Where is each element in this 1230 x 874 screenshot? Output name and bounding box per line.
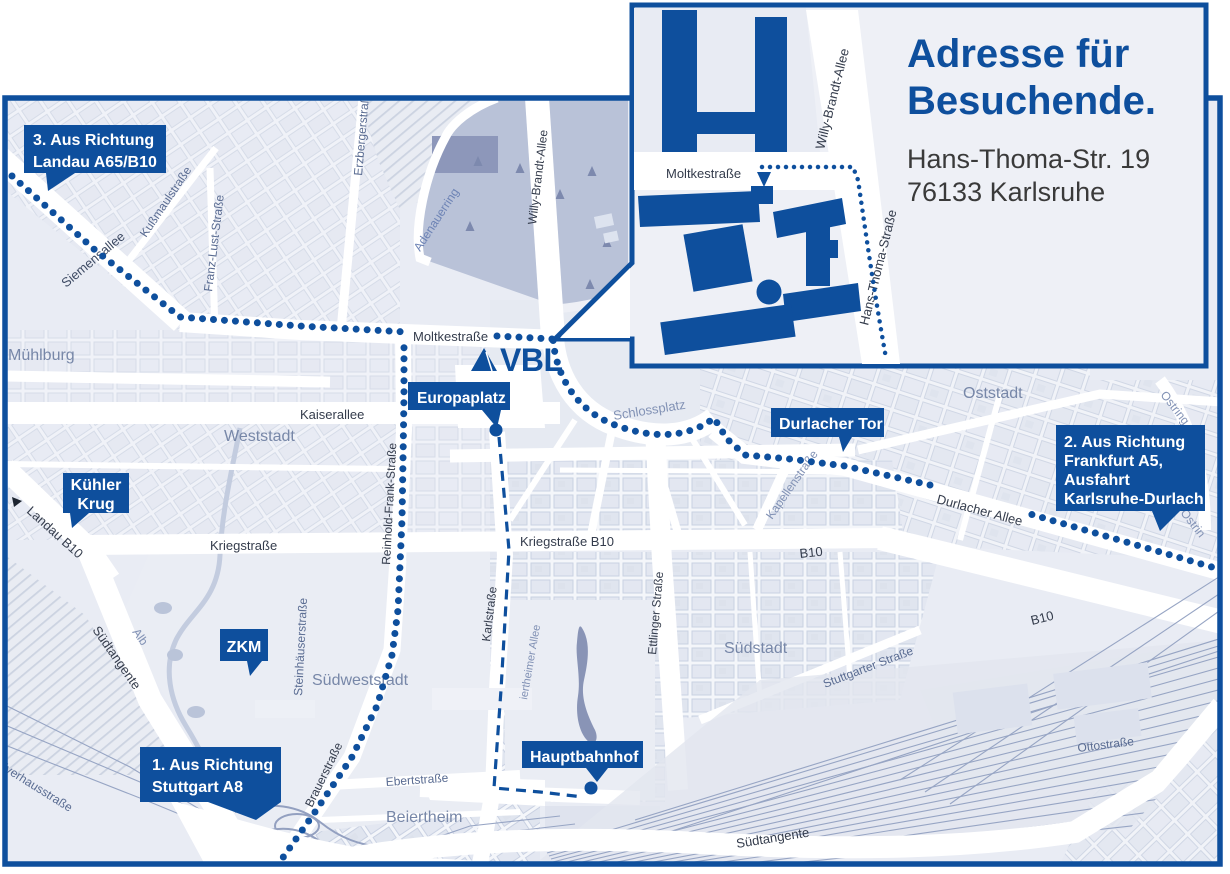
svg-text:Europaplatz: Europaplatz [417, 390, 506, 407]
svg-text:3. Aus Richtung: 3. Aus Richtung [33, 132, 154, 149]
svg-text:Kühler: Kühler [71, 477, 122, 494]
svg-text:Weststadt: Weststadt [224, 428, 295, 445]
svg-text:Ausfahrt: Ausfahrt [1064, 472, 1130, 489]
svg-text:76133 Karlsruhe: 76133 Karlsruhe [907, 177, 1105, 207]
svg-text:Kriegstraße B10: Kriegstraße B10 [520, 534, 614, 549]
svg-text:ZKM: ZKM [227, 639, 262, 656]
svg-text:Beiertheim: Beiertheim [386, 809, 462, 826]
svg-text:VBL: VBL [500, 342, 563, 378]
svg-text:Kriegstraße: Kriegstraße [210, 538, 277, 553]
svg-text:2. Aus Richtung: 2. Aus Richtung [1064, 434, 1185, 451]
svg-text:Kaiserallee: Kaiserallee [300, 407, 364, 422]
svg-text:B10: B10 [799, 544, 824, 561]
svg-text:Hauptbahnhof: Hauptbahnhof [530, 749, 639, 766]
svg-text:Durlacher Tor: Durlacher Tor [779, 416, 883, 433]
svg-text:Südstadt: Südstadt [724, 640, 788, 657]
svg-text:Moltkestraße: Moltkestraße [666, 166, 741, 181]
svg-text:Landau A65/B10: Landau A65/B10 [33, 154, 157, 171]
svg-text:Oststadt: Oststadt [963, 385, 1023, 402]
svg-text:Hans-Thoma-Str. 19: Hans-Thoma-Str. 19 [907, 144, 1150, 174]
svg-text:1. Aus Richtung: 1. Aus Richtung [152, 757, 273, 774]
svg-text:Südweststadt: Südweststadt [312, 672, 409, 689]
svg-text:Besuchende.: Besuchende. [907, 79, 1156, 123]
svg-text:Krug: Krug [77, 496, 114, 513]
svg-text:Mühlburg: Mühlburg [8, 347, 75, 364]
svg-text:Adresse für: Adresse für [907, 32, 1129, 76]
svg-text:Frankfurt A5,: Frankfurt A5, [1064, 453, 1163, 470]
svg-text:Moltkestraße: Moltkestraße [413, 329, 488, 344]
svg-text:Karlsruhe-Durlach: Karlsruhe-Durlach [1064, 491, 1204, 508]
svg-text:Stuttgart A8: Stuttgart A8 [152, 779, 243, 796]
